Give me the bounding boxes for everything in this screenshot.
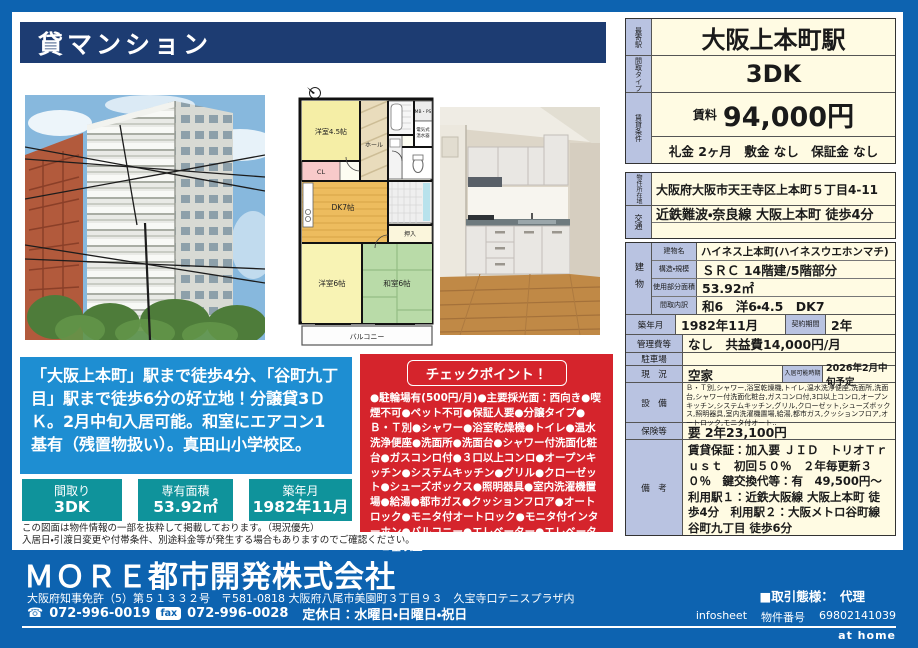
- status-label: 現 況: [626, 366, 683, 382]
- range-hood: [468, 177, 502, 187]
- built-value: 1982年11月: [676, 315, 786, 334]
- disclaimer-line-1: この図面は物件情報の一部を抜粋して掲載しております。（現況優先）: [22, 523, 415, 535]
- promo-box: 「大阪上本町」駅まで徒歩4分、「谷町九丁目」駅まで徒歩6分の好立地！分譲貸3ＤＫ…: [20, 357, 352, 474]
- tel-number: 072-996-0019: [49, 606, 150, 621]
- remarks-label: 備 考: [626, 440, 683, 535]
- company-contact: ☎ 072-996-0019 fax 072-996-0028 定休日：水曜日・…: [27, 604, 467, 623]
- hall-label: ホール: [365, 142, 383, 149]
- building-name-label: 建物名: [652, 243, 697, 260]
- property-number-value: 69802141039: [819, 609, 896, 625]
- kitchen-photo: [440, 107, 600, 335]
- insurance-value: 要 2年23,100円: [683, 423, 895, 439]
- building-name-value: ハイネス上本町(ハイネスウエホンマチ): [697, 243, 895, 260]
- oshiire-label: 押入: [404, 230, 416, 238]
- management-fee-value: なし 共益費14,000円/月: [683, 335, 895, 352]
- infosheet-label: infosheet: [696, 609, 747, 625]
- dk-label: DK7帖: [332, 202, 355, 212]
- layout-type-label: 間取タイプ: [626, 56, 652, 92]
- conditions-label: 賃貸条件: [626, 93, 652, 163]
- floorplan-image: バルコニー 洋室4.5帖 ホール MB・PS: [285, 85, 437, 348]
- white-tower: [87, 101, 233, 331]
- movein-label: 入居可能時期: [783, 366, 823, 382]
- station-value: 大阪上本町駅: [652, 19, 895, 55]
- phone-icon: ☎: [27, 606, 43, 621]
- flyer-page: 貸マンション: [0, 0, 918, 648]
- backsplash: [468, 187, 568, 219]
- rooms-value: 和6 洋6・4.5 DK7: [697, 297, 895, 314]
- infosheet-row: infosheet 物件番号 69802141039: [560, 609, 896, 625]
- summary-box-area: 専有面積 53.92㎡: [138, 479, 233, 521]
- washroom: [388, 135, 402, 179]
- fax-icon: fax: [156, 607, 181, 620]
- disclaimer-line-2: 入居日・引渡日変更や付帯条件、別途料金等が発生する場合もありますのでご確認くださ…: [22, 535, 415, 547]
- closet-cl: CL: [302, 161, 340, 181]
- hall: ホール: [360, 101, 388, 181]
- area-value: 53.92㎡: [697, 279, 895, 296]
- rent-label: 賃料: [693, 106, 717, 123]
- summary-area-label: 専有面積: [161, 484, 209, 498]
- bathroom: [388, 101, 414, 135]
- summary-layout-value: 3DK: [54, 498, 90, 517]
- parking-label: 駐車場: [626, 353, 683, 365]
- page-title: 貸マンション: [20, 22, 606, 63]
- offer-table: 最寄駅 大阪上本町駅 間取タイプ 3DK 賃貸条件 賃料 94,000円 礼金 …: [625, 18, 896, 164]
- holidays-text: 定休日：水曜日・日曜日・祝日: [302, 604, 467, 623]
- disclaimer: この図面は物件情報の一部を抜粋して掲載しております。（現況優先） 入居日・引渡日…: [22, 523, 415, 547]
- room-japanese-6: 和室6帖: [362, 243, 432, 323]
- deal-type: ■取引態様： 代理: [600, 586, 865, 605]
- page-title-text: 貸マンション: [38, 25, 212, 61]
- rooms-label: 間取内訳: [652, 297, 697, 314]
- bath-right: [388, 181, 432, 223]
- equipment-value: Ｂ・Ｔ別,シャワー,浴室乾燥機,トイレ,温水洗浄便座,洗面所,洗面台,シャワー付…: [683, 383, 895, 422]
- structure-label: 構造・規模: [652, 261, 697, 278]
- footer-divider: [22, 626, 896, 628]
- area-label: 使用部分面積: [652, 279, 697, 296]
- water-heater: 電気式 温水器: [414, 121, 432, 147]
- kitchen-photo-art: [440, 107, 600, 335]
- summary-built-value: 1982年11月: [253, 498, 349, 517]
- summary-layout-label: 間取り: [54, 484, 90, 498]
- status-value: 空家: [683, 366, 783, 382]
- summary-built-label: 築年月: [282, 484, 318, 498]
- summary-area-value: 53.92㎡: [153, 498, 218, 517]
- transport-value: 近鉄難波・奈良線 大阪上本町 徒歩4分: [652, 206, 895, 223]
- balcony-label: バルコニー: [350, 333, 385, 341]
- fees-value: 礼金 2ヶ月 敷金 なし 保証金 なし: [652, 137, 895, 163]
- station-label: 最寄駅: [626, 19, 652, 55]
- dk-room: DK7帖: [302, 181, 388, 243]
- summary-box-built: 築年月 1982年11月: [249, 479, 352, 521]
- rent-value: 94,000円: [723, 95, 854, 134]
- summary-box-layout: 間取り 3DK: [22, 479, 122, 521]
- oshiire-closet: 押入: [388, 225, 432, 243]
- location-table: 物件所在地 大阪府大阪市天王寺区上本町５丁目4-11 交通 近鉄難波・奈良線 大…: [625, 172, 896, 239]
- built-label: 築年月: [626, 315, 676, 334]
- building-photo-art: [25, 95, 265, 340]
- rent-row: 賃料 94,000円: [652, 93, 895, 137]
- location-value: 大阪府大阪市天王寺区上本町５丁目4-11: [652, 173, 895, 205]
- wood-floor: [440, 274, 600, 335]
- movein-value: 2026年2月中旬予定: [823, 366, 895, 382]
- mbps-label: MB・PS: [415, 109, 432, 115]
- layout-type-value: 3DK: [652, 56, 895, 92]
- room-japanese-6-label: 和室6帖: [383, 278, 411, 288]
- room-west-6: 洋室6帖: [302, 243, 362, 323]
- remarks-value: 賃貸保証：加入要 ＪＩＤ トリオＴｒｕｓｔ 初回５０％ ２年毎更新３０％ 鍵交換…: [683, 440, 895, 535]
- heater-label-1: 電気式: [416, 126, 430, 133]
- checkpoint-title: チェックポイント！: [407, 360, 567, 386]
- fax-number: 072-996-0028: [187, 606, 288, 621]
- room-west-6-label: 洋室6帖: [318, 278, 346, 288]
- meter-box: MB・PS: [414, 101, 432, 121]
- insurance-label: 保険等: [626, 423, 683, 439]
- contract-label: 契約期間: [786, 315, 826, 334]
- building-photo: [25, 95, 265, 340]
- room-west-45-label: 洋室4.5帖: [315, 127, 347, 136]
- building-label: 建物: [626, 243, 652, 314]
- athome-logo: at home: [700, 629, 896, 642]
- transport-label: 交通: [626, 206, 652, 238]
- balcony-area: バルコニー: [302, 326, 432, 345]
- transport-value-2: [652, 223, 895, 239]
- right-wall: [570, 143, 600, 277]
- checkpoint-box: チェックポイント！ ●駐輪場有(500円/月)●主要採光面：西向き●喫煙不可●ペ…: [360, 354, 613, 532]
- promo-text: 「大阪上本町」駅まで徒歩4分、「谷町九丁目」駅まで徒歩6分の好立地！分譲貸3ＤＫ…: [31, 366, 338, 454]
- room-west-45: 洋室4.5帖: [302, 101, 360, 161]
- lower-cabinets: [466, 226, 570, 274]
- building-table: 建物 建物名 ハイネス上本町(ハイネスウエホンマチ) 構造・規模 ＳＲＣ 14階…: [625, 242, 896, 536]
- equipment-label: 設 備: [626, 383, 683, 422]
- heater-label-2: 温水器: [416, 132, 430, 139]
- toilet: [402, 147, 432, 179]
- management-fee-label: 管理費等: [626, 335, 683, 352]
- structure-value: ＳＲＣ 14階建/5階部分: [697, 261, 895, 278]
- property-number-label: 物件番号: [761, 609, 805, 625]
- location-label: 物件所在地: [626, 173, 652, 205]
- floorplan-art: バルコニー 洋室4.5帖 ホール MB・PS: [285, 85, 437, 348]
- contract-value: 2年: [826, 315, 895, 334]
- cl-label: CL: [317, 168, 326, 176]
